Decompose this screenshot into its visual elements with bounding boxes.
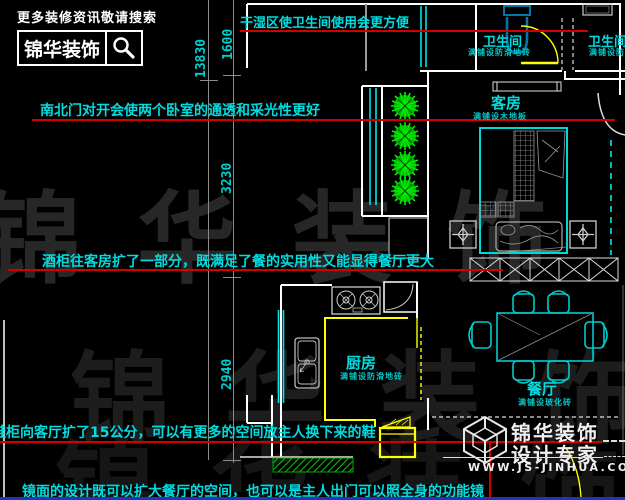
footer-divider xyxy=(443,457,603,458)
brand-name: 锦华装饰 xyxy=(19,32,105,64)
sink-icon xyxy=(295,338,319,388)
dimension-line xyxy=(233,0,234,463)
marker-line-4-ext xyxy=(603,440,625,442)
dimension-tick xyxy=(223,75,241,76)
right-door-arc xyxy=(598,93,625,135)
room-label-guest: 客房 xyxy=(491,92,521,113)
room-finish-guest: 满铺设木地板 xyxy=(473,111,527,122)
dining-table xyxy=(469,291,607,383)
room-label-kitchen: 厨房 xyxy=(346,352,376,373)
kitchen-corner-unit xyxy=(384,282,417,312)
banner-tagline: 更多装修资讯敬请搜索 xyxy=(17,7,157,26)
mirror-cabinet xyxy=(273,458,353,472)
note-shoe-cabinet: 鞋柜向客厅扩了15公分，可以有更多的空间放主人换下来的鞋 xyxy=(0,422,375,442)
dining-chair xyxy=(513,291,534,313)
dim-seg2: 3230 xyxy=(220,163,235,194)
room-finish-bathroom2: 满铺设防滑地砖 xyxy=(589,47,625,58)
note-dry-wet-zone: 干湿区使卫生间使用会更方便 xyxy=(240,12,409,31)
guest-bed xyxy=(480,128,567,253)
floor-plan-page: 锦华装饰 锦华装饰 锦华装饰 xyxy=(0,0,625,500)
search-banner: 更多装修资讯敬请搜索 锦华装饰 xyxy=(17,7,157,66)
footer-url: WWW.JS-JINHUA.COM xyxy=(468,461,625,474)
dim-seg1: 1600 xyxy=(221,29,236,60)
dim-total: 13830 xyxy=(194,39,209,78)
dining-chair xyxy=(469,322,491,348)
guest-shelf xyxy=(493,82,561,91)
room-finish-bathroom1: 满铺设防滑地砖 xyxy=(468,47,531,58)
stove-icon xyxy=(332,287,380,314)
note-doors: 南北门对开会使两个卧室的通透和采光性更好 xyxy=(40,100,320,120)
room-finish-kitchen: 满铺设防滑地砖 xyxy=(340,371,403,382)
dining-chair xyxy=(548,291,569,313)
washbasin-icon xyxy=(583,4,612,15)
dimension-tick xyxy=(223,277,241,278)
note-wine-cabinet: 酒柜往客房扩了一部分，既满足了餐的实用性又能显得餐厅更大 xyxy=(42,251,434,271)
plants-icon xyxy=(391,92,419,205)
windows xyxy=(279,6,427,403)
shoe-cabinet xyxy=(380,417,415,457)
room-label-dining: 餐厅 xyxy=(527,378,557,399)
room-finish-dining: 满铺设玻化砖 xyxy=(518,397,572,408)
dimension-tick xyxy=(223,460,241,461)
dimension-tick xyxy=(200,80,218,81)
dim-seg3: 2940 xyxy=(220,359,235,390)
magnifier-icon xyxy=(105,32,141,64)
footer-logo xyxy=(460,414,510,468)
door-openings xyxy=(432,18,620,417)
brand-search-box: 锦华装饰 xyxy=(17,30,143,66)
nightstands xyxy=(450,221,596,248)
dining-chair xyxy=(585,322,607,348)
footer-divider-ext xyxy=(604,456,625,457)
